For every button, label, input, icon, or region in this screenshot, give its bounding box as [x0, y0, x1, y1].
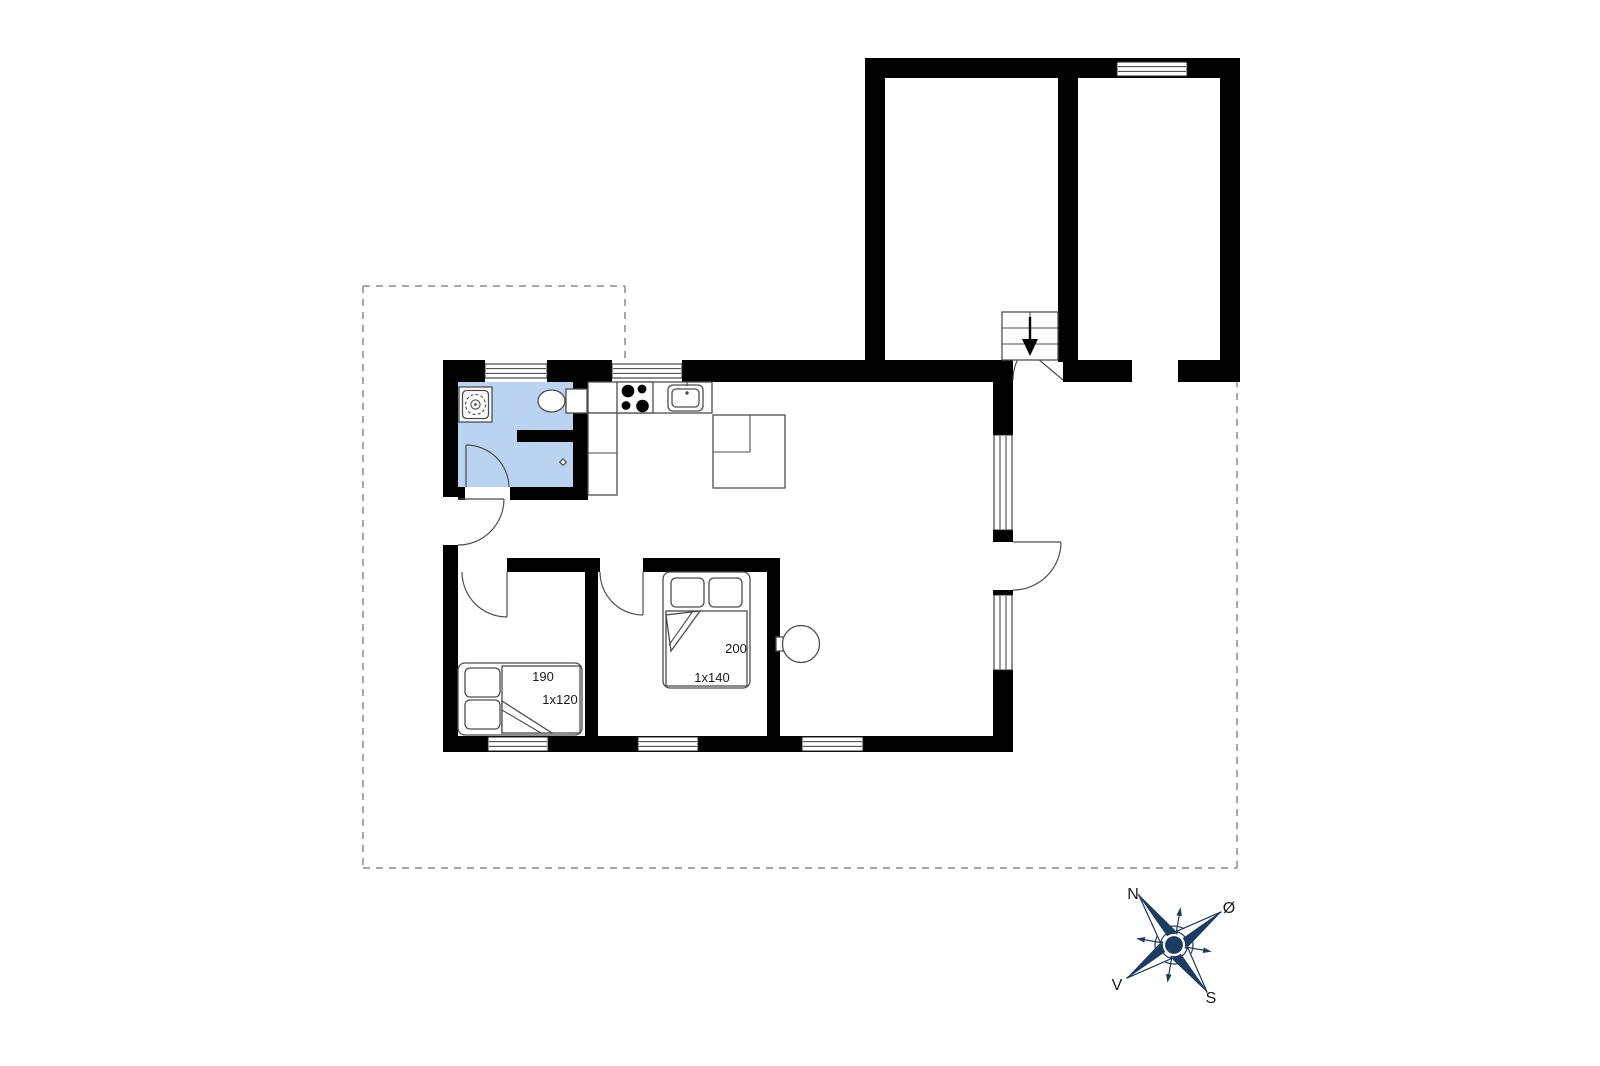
- wall-segment: [993, 360, 1013, 435]
- compass-north-label: N: [1127, 886, 1139, 903]
- wall-segment: [507, 558, 600, 572]
- window: [485, 364, 547, 378]
- bed-width-label: 1x120: [542, 692, 577, 707]
- wall-segment: [1063, 360, 1132, 382]
- wall-segment: [458, 487, 465, 500]
- wall-segment: [1178, 360, 1240, 382]
- wall-segment: [585, 572, 598, 736]
- bed-length-label: 200: [725, 641, 747, 656]
- pillow: [671, 578, 704, 607]
- window: [994, 595, 1012, 670]
- wall-segment: [993, 670, 1013, 752]
- pillow: [465, 668, 500, 697]
- wall-segment: [443, 545, 458, 752]
- pillow: [709, 578, 742, 607]
- window: [488, 737, 548, 751]
- window: [612, 364, 682, 378]
- kitchen-island: [713, 415, 785, 488]
- wall-segment: [643, 558, 780, 572]
- wall-segment: [517, 430, 588, 442]
- floor-plan-page: 190 1x120 200 1x140: [0, 0, 1600, 1066]
- wall-segment: [1058, 78, 1078, 362]
- wall-segment: [547, 360, 612, 382]
- stove-burners: [617, 382, 653, 413]
- compass-south-label: S: [1206, 990, 1217, 1007]
- compass-east-label: Ø: [1223, 900, 1235, 917]
- kitchen-counter-strip: [588, 413, 617, 495]
- wall-segment: [682, 360, 1013, 382]
- window: [1117, 62, 1187, 76]
- wall-segment: [865, 58, 885, 382]
- window: [994, 435, 1012, 530]
- bed-length-label: 190: [532, 669, 554, 684]
- wall-segment: [993, 590, 1013, 595]
- wall-segment: [510, 487, 588, 500]
- background: [0, 0, 1600, 1066]
- window: [638, 737, 698, 751]
- kitchen-sink: [668, 382, 703, 411]
- floor-plan-drawing: 190 1x120 200 1x140: [0, 0, 1600, 1066]
- pillow: [465, 700, 500, 729]
- wall-segment: [1220, 58, 1240, 382]
- staircase: [1002, 312, 1058, 360]
- bed-bedroom2: 200 1x140: [663, 572, 750, 688]
- window: [802, 737, 863, 751]
- bed-bedroom1: 190 1x120: [458, 663, 582, 735]
- wall-segment: [993, 530, 1013, 542]
- wall-segment: [443, 360, 458, 497]
- bed-width-label: 1x140: [694, 670, 729, 685]
- compass-west-label: V: [1112, 977, 1123, 994]
- shower: [459, 387, 492, 422]
